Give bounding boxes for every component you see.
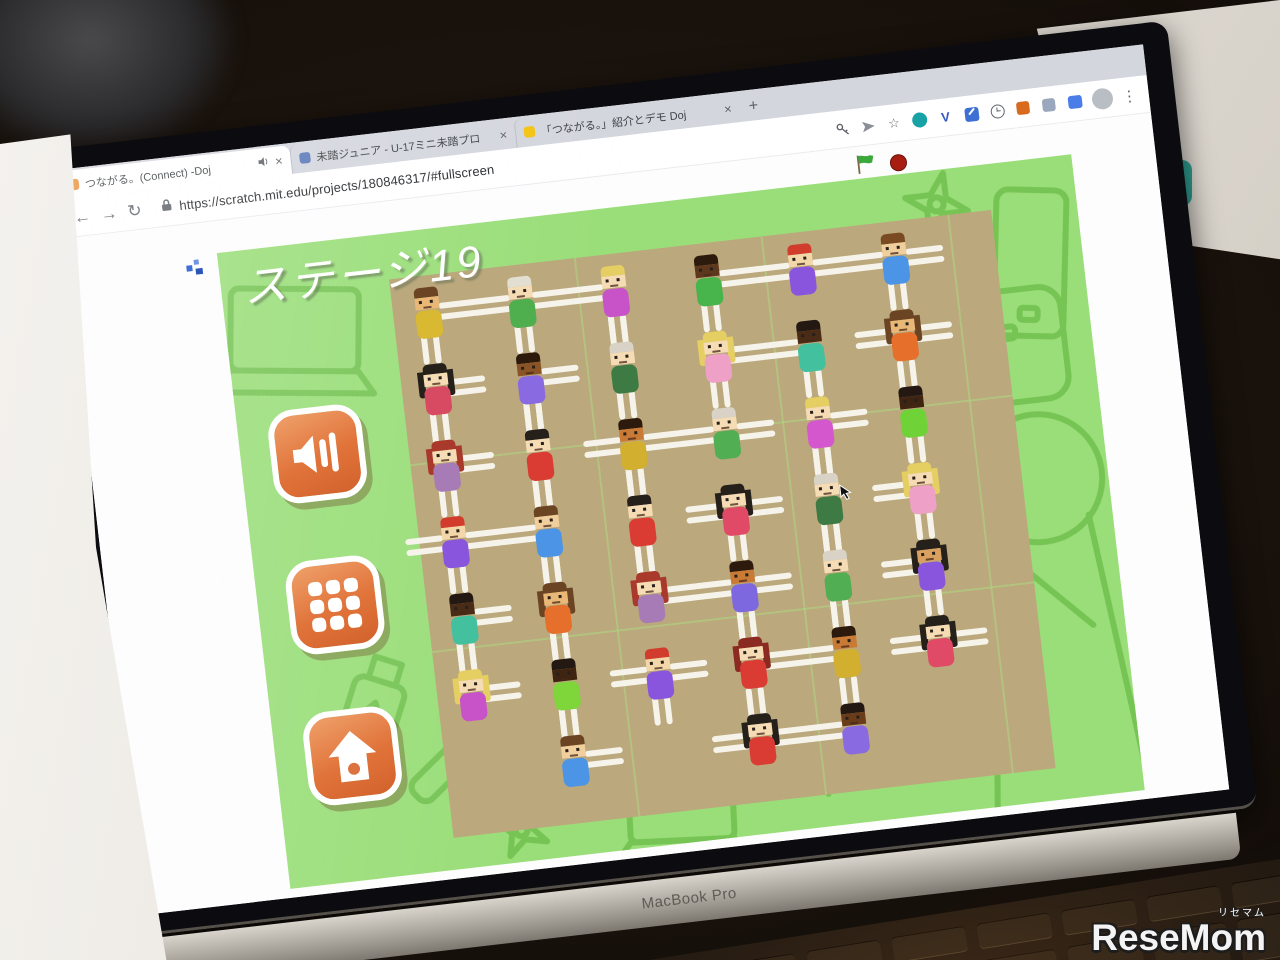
grid-character[interactable] [897,385,929,438]
grid-character[interactable] [617,417,649,470]
extension-pen-icon[interactable] [962,105,981,124]
extension-share-icon[interactable] [859,117,878,136]
watermark: リセマム ReseMom [1091,909,1266,956]
green-flag-button[interactable] [854,152,879,181]
extension-teal-circle-icon[interactable] [910,111,929,130]
grid-character[interactable] [439,515,471,568]
tab-favicon [299,152,311,164]
grid-character[interactable] [923,614,955,667]
keyboard-key [891,926,968,960]
grid-character[interactable] [550,658,582,711]
grid-character[interactable] [608,341,640,394]
grid-character[interactable] [523,428,555,481]
grid-character[interactable] [745,712,777,765]
scratch-page: ステージ19 [64,113,1229,915]
speaker-icon [287,425,349,483]
grid-character[interactable] [795,319,827,372]
browser-window: つながる。(Connect) -Doj × 未踏ジュニア - U-17ミニ未踏プ… [56,44,1229,915]
grid-character[interactable] [839,702,871,755]
stop-button[interactable] [889,153,908,172]
padlock-icon [160,198,173,217]
extension-blue-square-icon[interactable] [1065,93,1084,112]
cursor-sprite-icon [186,258,210,281]
grid-character[interactable] [728,559,760,612]
grid-character[interactable] [737,636,769,689]
grid-character[interactable] [626,494,658,547]
new-tab-button[interactable]: + [738,90,769,122]
grid-character[interactable] [532,505,564,558]
grid-character[interactable] [710,407,742,460]
grid-character[interactable] [643,647,675,700]
keyboard-key [721,953,798,960]
grid-character[interactable] [830,625,862,678]
tab-close-icon[interactable]: × [499,127,508,143]
tab-close-icon[interactable]: × [723,101,732,117]
extension-gray-square-icon[interactable] [1039,96,1058,115]
grid-character[interactable] [541,581,573,634]
sound-button[interactable] [266,402,370,506]
grid-character[interactable] [879,232,911,285]
laptop: つながる。(Connect) -Doj × 未踏ジュニア - U-17ミニ未踏プ… [24,20,1280,960]
grid-character[interactable] [719,483,751,536]
grid-character[interactable] [634,570,666,623]
grid-character[interactable] [559,734,591,787]
grid-character[interactable] [803,396,835,449]
keyboard-key [1231,871,1280,908]
extension-orange-square-icon[interactable] [1014,99,1033,118]
keypad-icon [305,575,365,635]
keyboard-key [806,939,883,960]
grid-character[interactable] [506,275,538,328]
grid-character[interactable] [786,243,818,296]
extension-v-icon[interactable]: V [936,108,955,127]
mouse-cursor-icon [839,483,854,506]
home-icon [322,726,384,786]
browser-menu-icon[interactable]: ⋮ [1121,86,1138,106]
grid-character[interactable] [448,592,480,645]
grid-character[interactable] [888,308,920,361]
puzzle-grid [389,210,1056,838]
grid-character[interactable] [812,472,844,525]
grid-character[interactable] [906,461,938,514]
keypad-button[interactable] [283,553,387,657]
profile-avatar[interactable] [1091,87,1114,110]
forward-button[interactable]: → [100,204,119,223]
grid-character[interactable] [821,549,853,602]
extension-key-icon[interactable] [833,120,852,139]
keyboard-key [982,949,1062,960]
grid-character[interactable] [457,668,489,721]
screen-bezel: つながる。(Connect) -Doj × 未踏ジュニア - U-17ミニ未踏プ… [24,20,1257,939]
game-stage: ステージ19 [217,154,1145,889]
grid-character[interactable] [692,254,724,307]
tab-audio-icon [257,155,270,170]
photo-background: つながる。(Connect) -Doj × 未踏ジュニア - U-17ミニ未踏プ… [0,0,1280,960]
reload-button[interactable]: ↻ [127,202,143,221]
grid-character[interactable] [915,538,947,591]
extension-star-icon[interactable]: ☆ [884,114,903,133]
grid-character[interactable] [701,330,733,383]
tab-close-icon[interactable]: × [274,153,283,169]
grid-character[interactable] [421,362,453,415]
grid-character[interactable] [599,264,631,317]
slides-favicon [523,126,535,138]
watermark-text: ReseMom [1091,919,1266,956]
grid-character[interactable] [514,352,546,405]
home-button[interactable] [300,704,404,808]
laptop-brand-label: MacBook Pro [641,885,738,913]
keyboard-key [976,912,1053,949]
grid-character[interactable] [430,439,462,492]
extension-clock-icon[interactable] [988,102,1007,121]
